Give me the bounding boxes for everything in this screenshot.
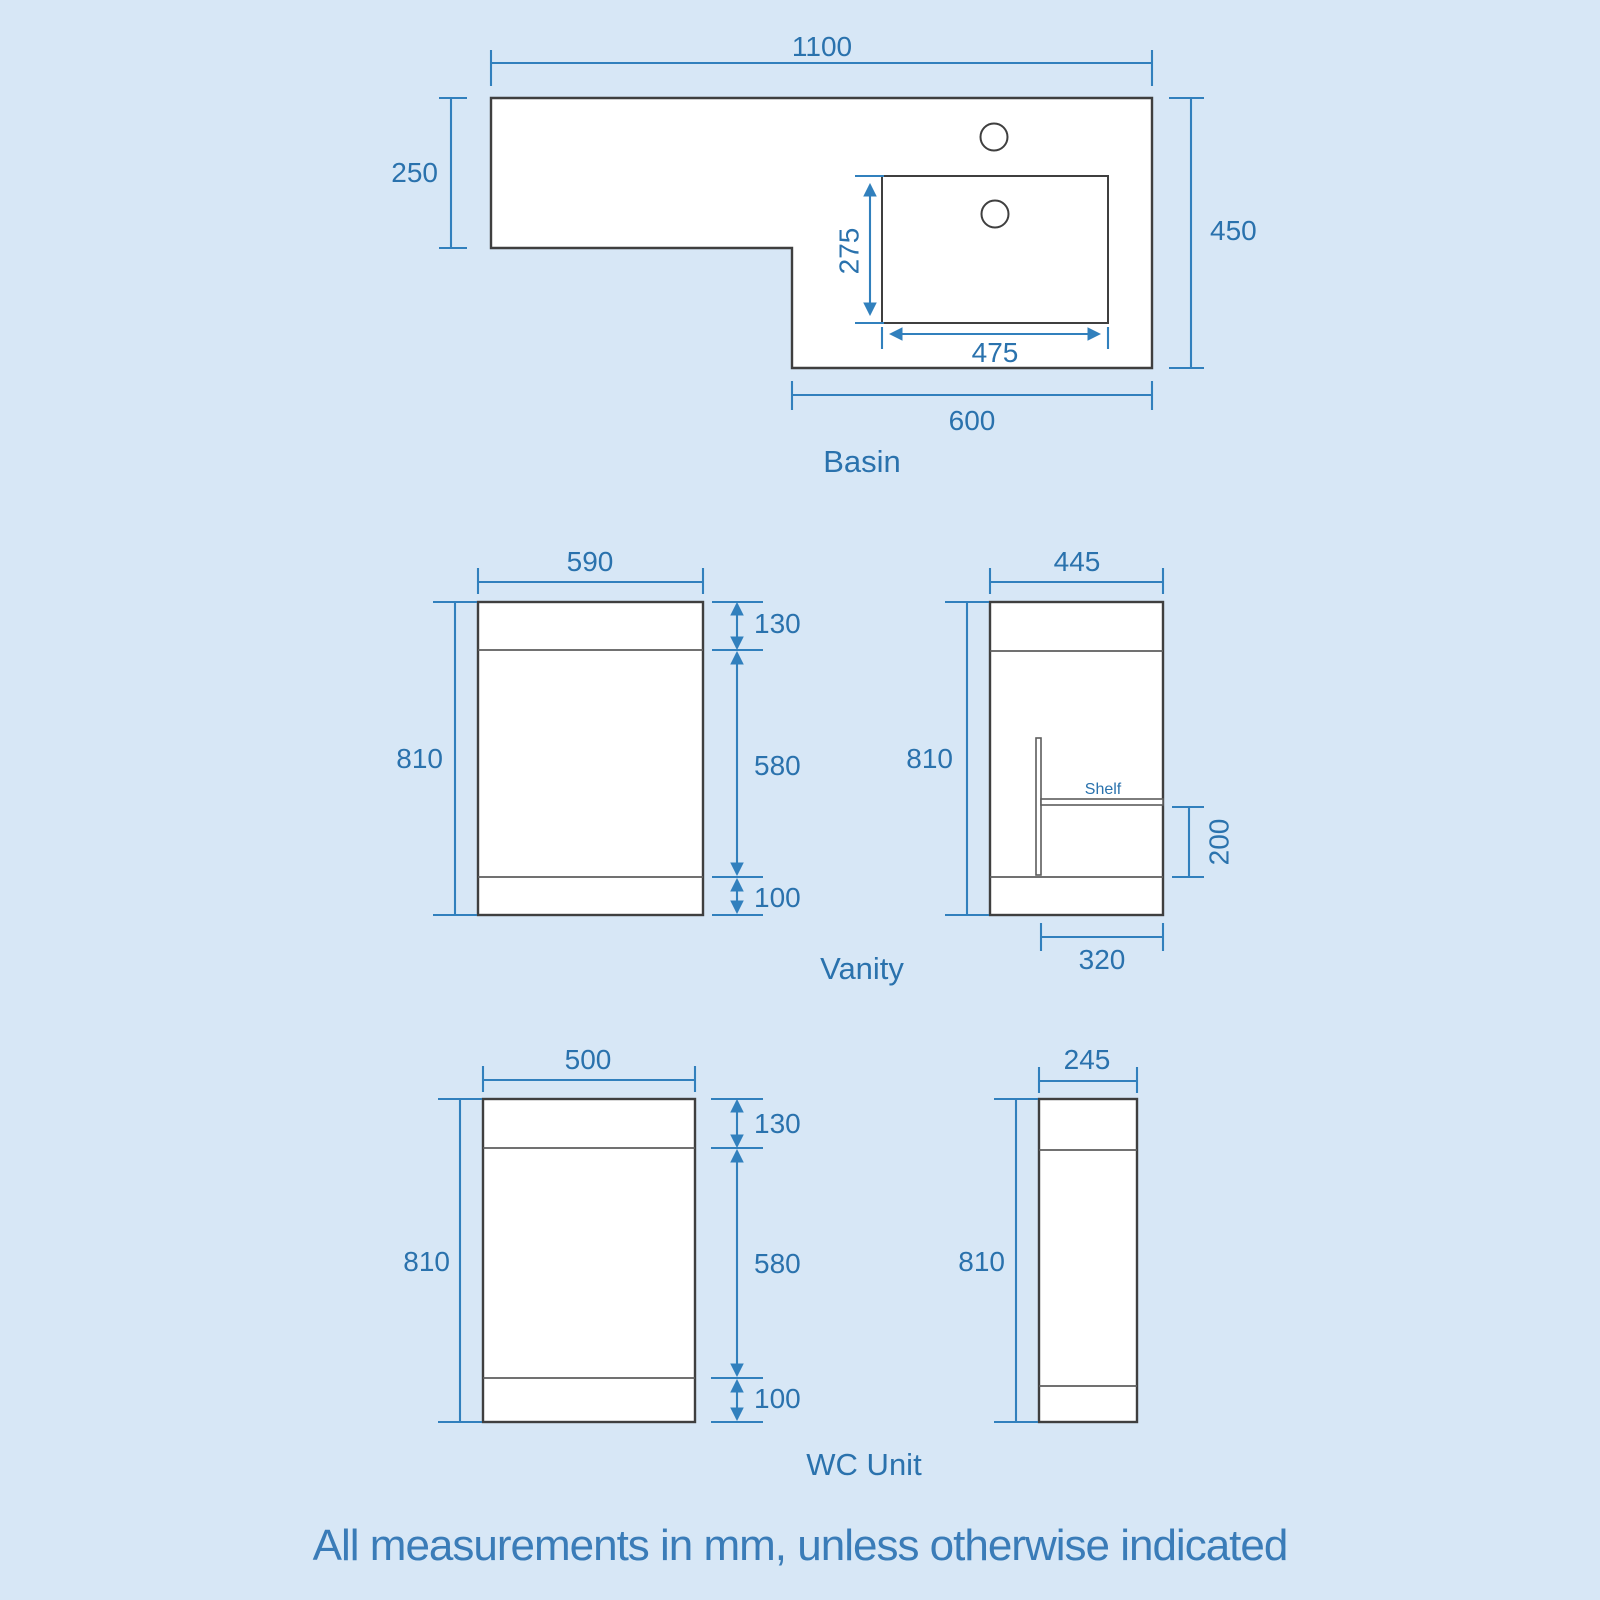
dim-label-basin-bowl-depth: 275 (834, 228, 865, 275)
vanity-front-drawing: 590 810 130 580 100 (396, 546, 800, 915)
dim-wc-side-depth: 245 (1039, 1044, 1137, 1093)
measurements-note: All measurements in mm, unless otherwise… (313, 1521, 1288, 1570)
basin-bowl-outline (882, 176, 1108, 323)
dim-vanity-side-shelf-height: 200 (1172, 807, 1235, 877)
dim-label-vanity-side-shelf-depth: 320 (1079, 944, 1126, 975)
dim-wc-front-sections: 130 580 100 (711, 1099, 801, 1422)
wc-side-outline (1039, 1099, 1137, 1422)
technical-drawing-canvas: 1100 250 450 600 275 (0, 0, 1600, 1600)
dim-vanity-side-shelf-depth: 320 (1041, 923, 1163, 975)
dim-basin-right-width: 600 (792, 381, 1152, 436)
dim-wc-side-height: 810 (958, 1099, 1038, 1422)
vanity-side-shelf-board (1041, 799, 1163, 805)
vanity-side-outline (990, 602, 1163, 915)
dim-label-wc-front-width: 500 (565, 1044, 612, 1075)
dim-label-vanity-side-depth: 445 (1054, 546, 1101, 577)
dimension-diagram: 1100 250 450 600 275 (0, 0, 1600, 1600)
dim-basin-overall-width: 1100 (491, 31, 1152, 86)
dim-label-wc-front-height: 810 (403, 1246, 450, 1277)
dim-label-basin-left-depth: 250 (391, 157, 438, 188)
dim-label-vanity-front-door-section: 580 (754, 750, 801, 781)
vanity-front-outline (478, 602, 703, 915)
dim-label-wc-front-plinth: 100 (754, 1383, 801, 1414)
dim-label-vanity-front-plinth: 100 (754, 882, 801, 913)
dim-label-vanity-side-shelf-height: 200 (1204, 819, 1235, 866)
dim-wc-front-width: 500 (483, 1044, 695, 1092)
dim-label-vanity-front-top-section: 130 (754, 608, 801, 639)
dim-vanity-front-width: 590 (478, 546, 703, 594)
dim-basin-left-depth: 250 (391, 98, 467, 248)
dim-vanity-front-sections: 130 580 100 (712, 602, 801, 915)
dim-wc-front-height: 810 (403, 1099, 482, 1422)
basin-title: Basin (823, 444, 901, 479)
waste-hole-icon (982, 201, 1009, 228)
basin-drawing: 1100 250 450 600 275 (391, 31, 1256, 479)
dim-vanity-front-height: 810 (396, 602, 477, 915)
shelf-label: Shelf (1085, 781, 1122, 798)
vanity-side-drawing: Shelf 445 810 200 320 V (820, 546, 1234, 986)
dim-vanity-side-height: 810 (906, 602, 989, 915)
dim-label-wc-side-depth: 245 (1064, 1044, 1111, 1075)
dim-label-wc-front-door-section: 580 (754, 1248, 801, 1279)
dim-basin-right-depth: 450 (1169, 98, 1257, 368)
dim-label-vanity-side-height: 810 (906, 743, 953, 774)
dim-label-wc-front-top-section: 130 (754, 1108, 801, 1139)
dim-label-wc-side-height: 810 (958, 1246, 1005, 1277)
dim-vanity-side-depth: 445 (990, 546, 1163, 594)
tap-hole-icon (981, 124, 1008, 151)
dim-label-basin-bowl-width: 475 (972, 337, 1019, 368)
wc-front-drawing: 500 810 130 580 100 (403, 1044, 800, 1422)
dim-label-basin-right-width: 600 (949, 405, 996, 436)
dim-label-basin-overall-width: 1100 (792, 31, 852, 62)
dim-label-vanity-front-width: 590 (567, 546, 614, 577)
vanity-side-door-panel (1036, 738, 1041, 875)
wc-title: WC Unit (806, 1447, 922, 1482)
vanity-title: Vanity (820, 951, 904, 986)
dim-label-vanity-front-height: 810 (396, 743, 443, 774)
wc-side-drawing: 245 810 WC Unit (806, 1044, 1137, 1482)
dim-label-basin-right-depth: 450 (1210, 215, 1257, 246)
